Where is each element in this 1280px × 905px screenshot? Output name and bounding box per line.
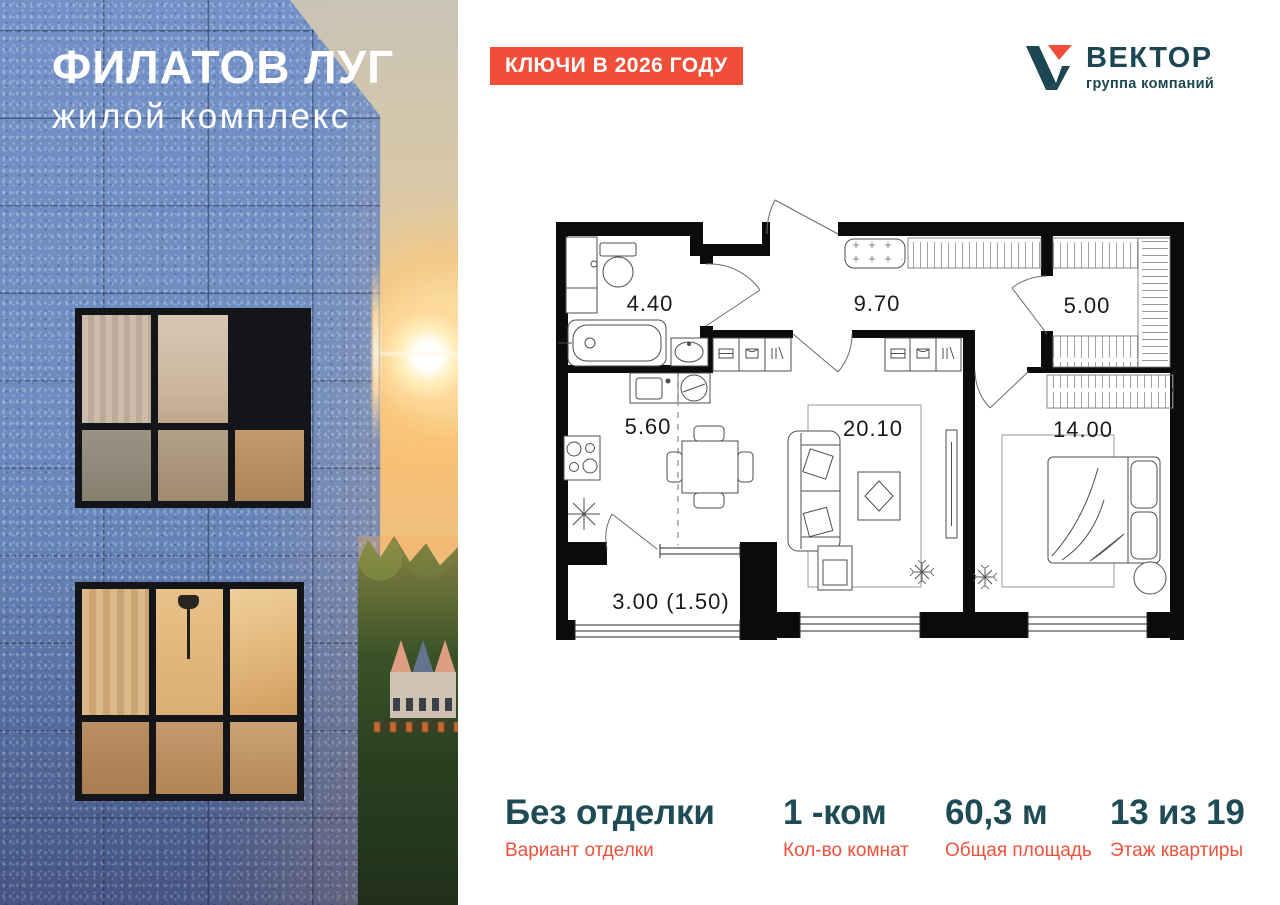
bedside-table-icon <box>1134 562 1166 594</box>
complex-title-block: ФИЛАТОВ ЛУГ жилой комплекс <box>52 42 394 137</box>
dining-table-icon <box>667 426 753 508</box>
window-pane <box>230 589 297 715</box>
bedroom-window <box>1028 612 1147 638</box>
window-pane <box>82 430 151 501</box>
complex-subtitle: жилой комплекс <box>52 97 394 137</box>
washbasin-icon <box>671 338 708 366</box>
developer-logo: ВЕКТОР группа компаний <box>1026 44 1214 92</box>
stat-finish: Без отделки Вариант отделки <box>505 795 715 862</box>
window-pane <box>156 722 223 794</box>
entrance-door <box>767 200 838 234</box>
logo-name: ВЕКТОР <box>1086 44 1214 73</box>
kitchen-sink-icon <box>630 373 678 403</box>
bathroom-door <box>706 264 760 326</box>
window-pane <box>158 430 227 501</box>
floor-plan: 4.40 9.70 5.00 5.60 20.10 14.00 3.00 (1.… <box>556 195 1188 655</box>
room-label-bathroom: 4.40 <box>627 291 674 316</box>
room-label-living: 20.10 <box>843 416 903 441</box>
sun <box>368 296 458 416</box>
bedroom-door <box>975 371 1029 408</box>
living-room-window <box>800 612 920 638</box>
building-photo: ФИЛАТОВ ЛУГ жилой комплекс <box>0 0 458 905</box>
stat-label: Общая площадь <box>945 840 1092 862</box>
room-label-kitchen: 5.60 <box>625 414 672 439</box>
facade-window-upper <box>75 308 311 508</box>
plant-icon <box>973 565 997 589</box>
tv-stand-icon <box>946 430 957 538</box>
kindergarten-building <box>390 640 456 740</box>
vector-logo-icon <box>1026 45 1072 91</box>
balcony-door <box>606 514 657 549</box>
room-label-wardrobe: 5.00 <box>1064 293 1111 318</box>
ventilation-shaft <box>566 237 597 313</box>
window-pane <box>82 589 149 715</box>
window-pane <box>82 315 151 423</box>
balcony-door-window <box>660 544 740 558</box>
apartment-flyer: ФИЛАТОВ ЛУГ жилой комплекс КЛЮЧИ В 2026 … <box>0 0 1280 905</box>
living-room-door <box>793 334 852 372</box>
bed-icon <box>1048 457 1160 563</box>
window-pane <box>156 589 223 715</box>
sink-symbol-icon <box>568 498 600 530</box>
stat-value: 1 -ком <box>783 795 909 830</box>
stat-area: 60,3 м Общая площадь <box>945 795 1092 862</box>
window-pane <box>82 722 149 794</box>
sofa-icon <box>788 431 840 551</box>
wardrobe-door <box>1012 276 1047 334</box>
facade-window-lower <box>75 582 304 801</box>
stat-value: Без отделки <box>505 795 715 830</box>
window-pane <box>235 315 304 423</box>
balcony-glazing <box>575 620 740 640</box>
window-pane <box>158 315 227 423</box>
room-label-hallway: 9.70 <box>854 291 901 316</box>
lamp-icon <box>187 607 190 659</box>
keys-badge: КЛЮЧИ В 2026 ГОДУ <box>490 47 743 85</box>
logo-tagline: группа компаний <box>1086 76 1214 92</box>
trees-sunlight <box>358 536 458 656</box>
stat-rooms: 1 -ком Кол-во комнат <box>783 795 909 862</box>
bathtub-icon <box>558 320 666 366</box>
armchair-icon <box>818 546 852 590</box>
stat-label: Кол-во комнат <box>783 840 909 862</box>
window-pane <box>235 430 304 501</box>
stat-value: 60,3 м <box>945 795 1092 830</box>
hallway-cabinets <box>713 338 791 371</box>
window-pane <box>230 722 297 794</box>
plant-icon <box>910 560 934 584</box>
stat-value: 13 из 19 <box>1110 795 1245 830</box>
stove-icon <box>564 436 600 480</box>
hallway-cabinets <box>885 338 961 371</box>
stat-floor: 13 из 19 Этаж квартиры <box>1110 795 1245 862</box>
wardrobe-hatch <box>908 238 1173 408</box>
stat-label: Вариант отделки <box>505 840 715 862</box>
washing-machine-icon <box>678 373 710 403</box>
stat-label: Этаж квартиры <box>1110 840 1245 862</box>
complex-title: ФИЛАТОВ ЛУГ <box>52 42 394 93</box>
room-label-balcony: 3.00 (1.50) <box>612 589 729 614</box>
toilet-icon <box>591 243 636 287</box>
facade-rim-light <box>372 262 380 442</box>
room-label-bedroom: 14.00 <box>1053 417 1113 442</box>
kindergarten-roof <box>390 640 456 674</box>
hallway-bench <box>845 239 905 268</box>
playground <box>374 722 458 732</box>
coffee-table-icon <box>858 472 900 520</box>
